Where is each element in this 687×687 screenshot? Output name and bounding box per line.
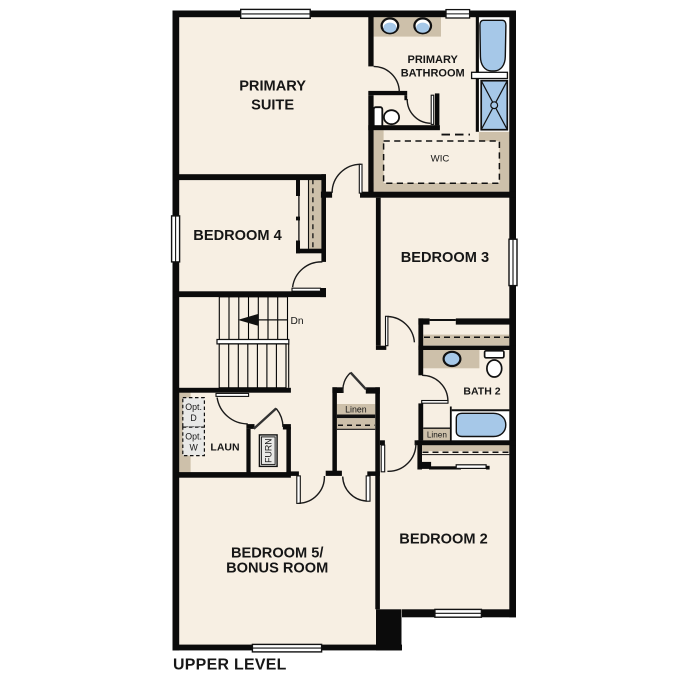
svg-text:PRIMARY: PRIMARY xyxy=(408,54,459,66)
svg-text:UPPER LEVEL: UPPER LEVEL xyxy=(173,657,287,674)
svg-text:Opt.: Opt. xyxy=(185,432,202,442)
svg-text:Linen: Linen xyxy=(345,404,367,414)
svg-text:FURN: FURN xyxy=(264,438,274,462)
svg-text:LAUN: LAUN xyxy=(210,442,239,454)
svg-text:Opt.: Opt. xyxy=(185,402,202,412)
svg-text:D: D xyxy=(190,413,196,423)
svg-text:BEDROOM 2: BEDROOM 2 xyxy=(399,531,487,547)
svg-text:WIC: WIC xyxy=(431,153,450,164)
svg-text:SUITE: SUITE xyxy=(251,97,294,113)
svg-text:PRIMARY: PRIMARY xyxy=(239,78,306,94)
svg-text:BATHROOM: BATHROOM xyxy=(401,68,465,80)
svg-text:BONUS ROOM: BONUS ROOM xyxy=(226,561,328,577)
svg-text:BATH 2: BATH 2 xyxy=(463,385,500,397)
svg-text:BEDROOM 3: BEDROOM 3 xyxy=(401,250,489,266)
svg-text:Linen: Linen xyxy=(427,431,447,440)
svg-text:Dn: Dn xyxy=(291,316,304,327)
svg-text:W: W xyxy=(189,443,198,453)
svg-text:BEDROOM 5/: BEDROOM 5/ xyxy=(231,545,323,561)
svg-text:BEDROOM 4: BEDROOM 4 xyxy=(193,228,282,244)
